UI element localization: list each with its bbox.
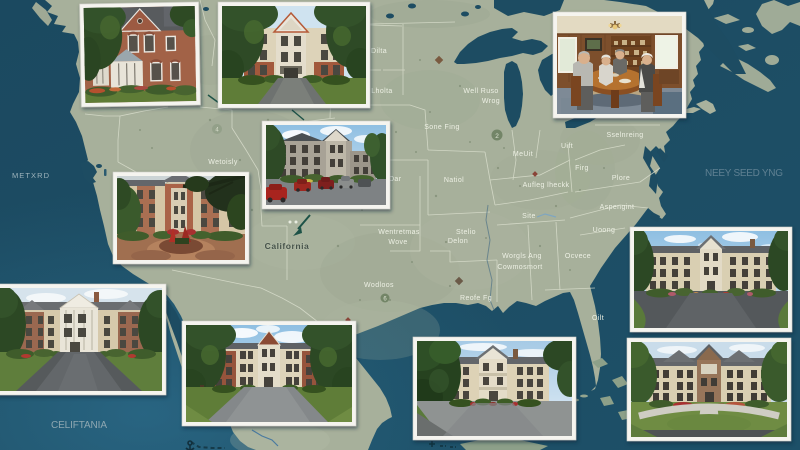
svg-text:NEEY SEED YNG: NEEY SEED YNG	[705, 168, 783, 179]
svg-text:Sselnreing: Sselnreing	[606, 132, 643, 139]
svg-text:Worgls Ang: Worgls Ang	[502, 253, 542, 260]
svg-text:Cowmosmort: Cowmosmort	[497, 264, 542, 271]
svg-text:Wodloos: Wodloos	[364, 282, 394, 289]
svg-text:Wove: Wove	[388, 239, 407, 246]
svg-text:Aufleg lheckk: Aufleg lheckk	[523, 182, 570, 189]
svg-text:Uift: Uift	[561, 143, 573, 150]
svg-text:Ocvece: Ocvece	[565, 253, 591, 260]
svg-text:CELIFTANIA: CELIFTANIA	[51, 420, 107, 431]
svg-text:Oilt: Oilt	[592, 315, 604, 322]
svg-text:Sone Fing: Sone Fing	[424, 124, 460, 131]
svg-text:Wetoisly: Wetoisly	[208, 159, 238, 166]
svg-text:Lholta: Lholta	[371, 88, 392, 95]
svg-text:Wrog: Wrog	[482, 98, 500, 105]
svg-text:Uoong: Uoong	[593, 227, 616, 234]
svg-text:California: California	[265, 241, 310, 251]
svg-text:Well Ruso: Well Ruso	[463, 88, 498, 95]
svg-text:Natiol: Natiol	[444, 177, 464, 184]
svg-text:Delon: Delon	[448, 238, 468, 245]
svg-text:Dilta: Dilta	[371, 48, 387, 55]
svg-text:2: 2	[495, 133, 499, 140]
svg-text:Reofe Fg: Reofe Fg	[460, 295, 492, 302]
svg-text:METXRD: METXRD	[12, 171, 50, 180]
svg-text:Site: Site	[522, 213, 536, 220]
svg-text:Aspengint: Aspengint	[600, 204, 635, 211]
svg-text:Oar: Oar	[389, 176, 402, 183]
svg-text:Plore: Plore	[612, 175, 630, 182]
svg-text:Wentretmas: Wentretmas	[378, 229, 420, 236]
svg-text:MeUit: MeUit	[513, 151, 533, 158]
svg-text:Stelio: Stelio	[456, 229, 476, 236]
svg-text:Firg: Firg	[575, 165, 589, 172]
